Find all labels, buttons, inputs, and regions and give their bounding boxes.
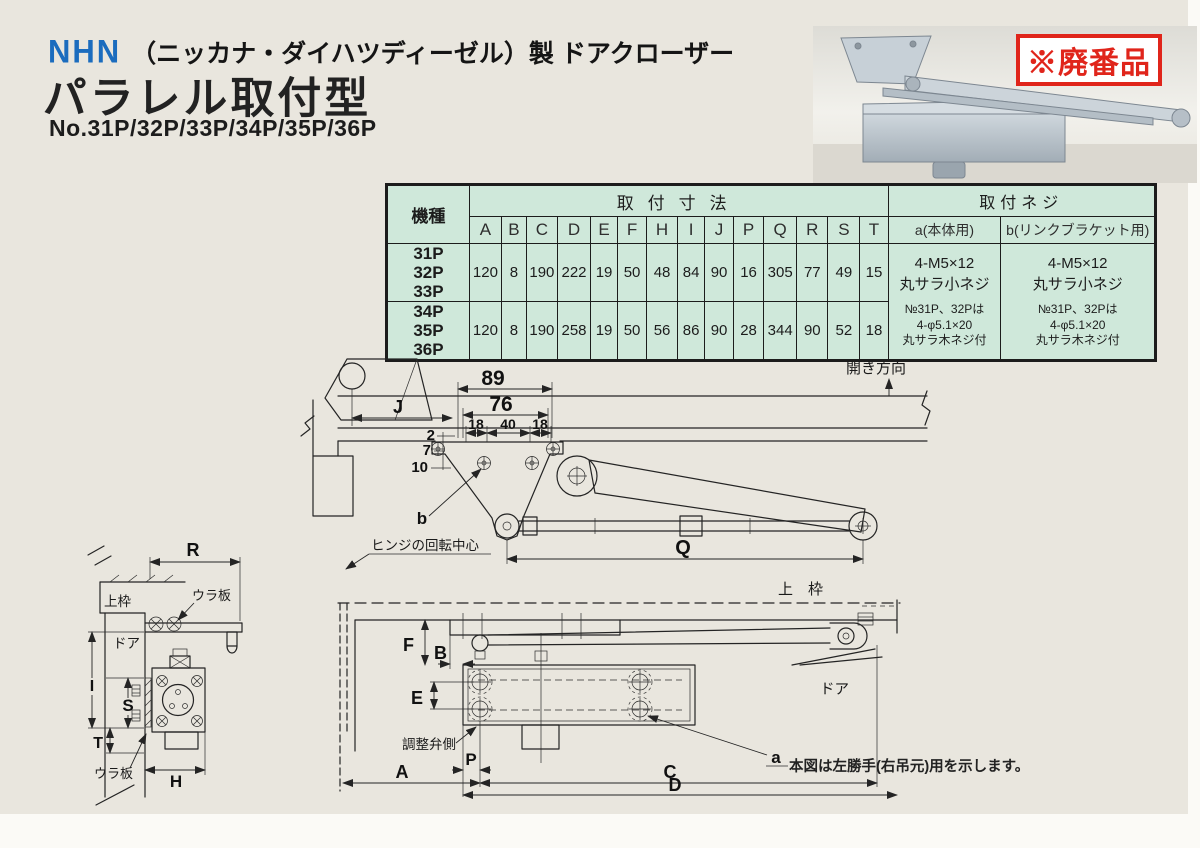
col-F: F [618,217,647,244]
screw-cond: №31P、32Pは [1001,302,1154,318]
dim-E: E [411,688,423,708]
col-H: H [647,217,678,244]
col-B: B [502,217,527,244]
cell-value: 120 [469,244,501,302]
cell-value: 222 [557,244,590,302]
front-labels: 調整弁側 a [402,716,788,767]
model-34P: 34P [388,302,469,321]
cell-value: 50 [618,302,647,361]
label-a: a [771,748,781,767]
dim-F: F [403,635,414,655]
link-bracket [432,442,563,540]
cell-value: 8 [502,244,527,302]
dim-D: D [669,775,682,795]
col-R: R [797,217,828,244]
col-screw-a: a(本体用) [888,217,1001,244]
cell-value: 90 [705,302,734,361]
adjust-valve-label: 調整弁側 [402,737,456,752]
cell-value: 305 [764,244,797,302]
hinge-center-label: ヒンジの回転中心 [371,538,479,553]
cell-value: 344 [764,302,797,361]
cell-value: 90 [705,244,734,302]
dim-T: T [93,735,103,752]
cell-value: 77 [797,244,828,302]
hinge-plate [325,359,432,426]
dim-10: 10 [411,459,428,476]
models-34-36: 34P 35P 36P [387,302,470,361]
door-label: ドア [113,636,140,651]
cell-value: 84 [678,244,705,302]
dim-18-left: 18 [468,416,484,432]
handedness-note: 本図は左勝手(右吊元)用を示します。 [789,755,1029,776]
col-E: E [591,217,618,244]
back-plate-bottom-label: ウラ板 [94,766,133,781]
side-labels: ウラ板 ウラ板 [94,588,231,781]
cell-value: 49 [828,244,860,302]
screw-size2: 4-φ5.1×20 [1001,318,1154,334]
col-D: D [557,217,590,244]
front-frame: 上 枠 [338,581,900,633]
dim-A: A [396,762,409,782]
model-32P: 32P [388,263,469,282]
cell-value: 56 [647,302,678,361]
col-Q: Q [764,217,797,244]
dim-I: I [90,678,94,695]
cell-value: 8 [502,302,527,361]
top-frame-label: 上 枠 [778,581,823,598]
plan-view-drawing: 89 76 18 40 18 J 2 7 10 b Q ヒンジの回転中心 開き方… [295,356,935,581]
side-view-drawing: 上枠 ドア R [80,535,360,835]
screw-cond: №31P、32Pは [889,302,1001,318]
fore-arm [519,516,849,536]
plan-labels: ヒンジの回転中心 開き方向 [346,360,906,569]
col-header-screws: 取付ネジ [888,185,1156,217]
dim-J: J [393,397,403,417]
col-A: A [469,217,501,244]
label-b: b [417,509,427,528]
cell-value: 15 [860,244,888,302]
front-closer-body [463,665,695,749]
cell-value: 19 [591,244,618,302]
col-T: T [860,217,888,244]
dim-B: B [434,643,447,663]
back-plate-top-label: ウラ板 [192,588,231,603]
dim-18-right: 18 [532,416,548,432]
dim-R: R [187,540,200,560]
side-bracket-plate [145,617,242,653]
model-33P: 33P [388,282,469,301]
screw-size: 4-M5×12 [889,254,1001,274]
screw-spec-a: 4-M5×12 丸サラ小ネジ №31P、32Pは 4-φ5.1×20 丸サラ木ネ… [888,244,1001,361]
screw-size2: 4-φ5.1×20 [889,318,1001,334]
screw-type2: 丸サラ木ネジ付 [1001,333,1154,349]
cell-value: 190 [526,244,557,302]
screw-type: 丸サラ小ネジ [1001,275,1154,295]
dim-76: 76 [489,393,512,416]
dim-Q: Q [675,537,691,559]
col-header-dimensions: 取付寸法 [469,185,888,217]
dim-H: H [170,772,182,791]
main-arm [557,456,877,540]
col-J: J [705,217,734,244]
cell-value: 90 [797,302,828,361]
cell-value: 19 [591,302,618,361]
dim-S: S [122,696,133,715]
spec-table: 機種 取付寸法 取付ネジ A B C D E F H I J P Q R S T… [385,183,1157,362]
side-frame: 上枠 [88,546,185,613]
screw-type2: 丸サラ木ネジ付 [889,333,1001,349]
col-S: S [828,217,860,244]
cell-value: 120 [469,302,501,361]
door-label: ドア [820,682,849,698]
model-numbers: No.31P/32P/33P/34P/35P/36P [49,115,377,142]
bracket-screws [431,442,560,470]
screw-type: 丸サラ小ネジ [889,275,1001,295]
discontinued-badge: ※廃番品 [1016,34,1162,86]
cell-value: 52 [828,302,860,361]
models-31-33: 31P 32P 33P [387,244,470,302]
cell-value: 28 [734,302,764,361]
side-dimensions: R I S T H [88,540,240,791]
open-direction-label: 開き方向 [846,360,906,377]
table-row-31-33: 31P 32P 33P 120 8 190 222 19 50 48 84 90… [387,244,1156,302]
dim-89: 89 [481,367,504,390]
col-I: I [678,217,705,244]
cell-value: 258 [557,302,590,361]
dim-40: 40 [500,416,516,432]
col-screw-b: b(リンクブラケット用) [1001,217,1156,244]
cell-value: 48 [647,244,678,302]
cell-value: 86 [678,302,705,361]
dim-letter-row: A B C D E F H I J P Q R S T a(本体用) b(リンク… [387,217,1156,244]
col-C: C [526,217,557,244]
model-31P: 31P [388,244,469,263]
dim-7: 7 [423,442,431,459]
model-35P: 35P [388,321,469,340]
col-header-model: 機種 [387,185,470,244]
top-frame-label: 上枠 [104,594,131,609]
cell-value: 16 [734,244,764,302]
cell-value: 50 [618,244,647,302]
screw-spec-b: 4-M5×12 丸サラ小ネジ №31P、32Pは 4-φ5.1×20 丸サラ木ネ… [1001,244,1156,361]
dim-P: P [465,750,476,769]
cell-value: 190 [526,302,557,361]
col-P: P [734,217,764,244]
side-closer-body [132,649,205,749]
cell-value: 18 [860,302,888,361]
screw-size: 4-M5×12 [1001,254,1154,274]
